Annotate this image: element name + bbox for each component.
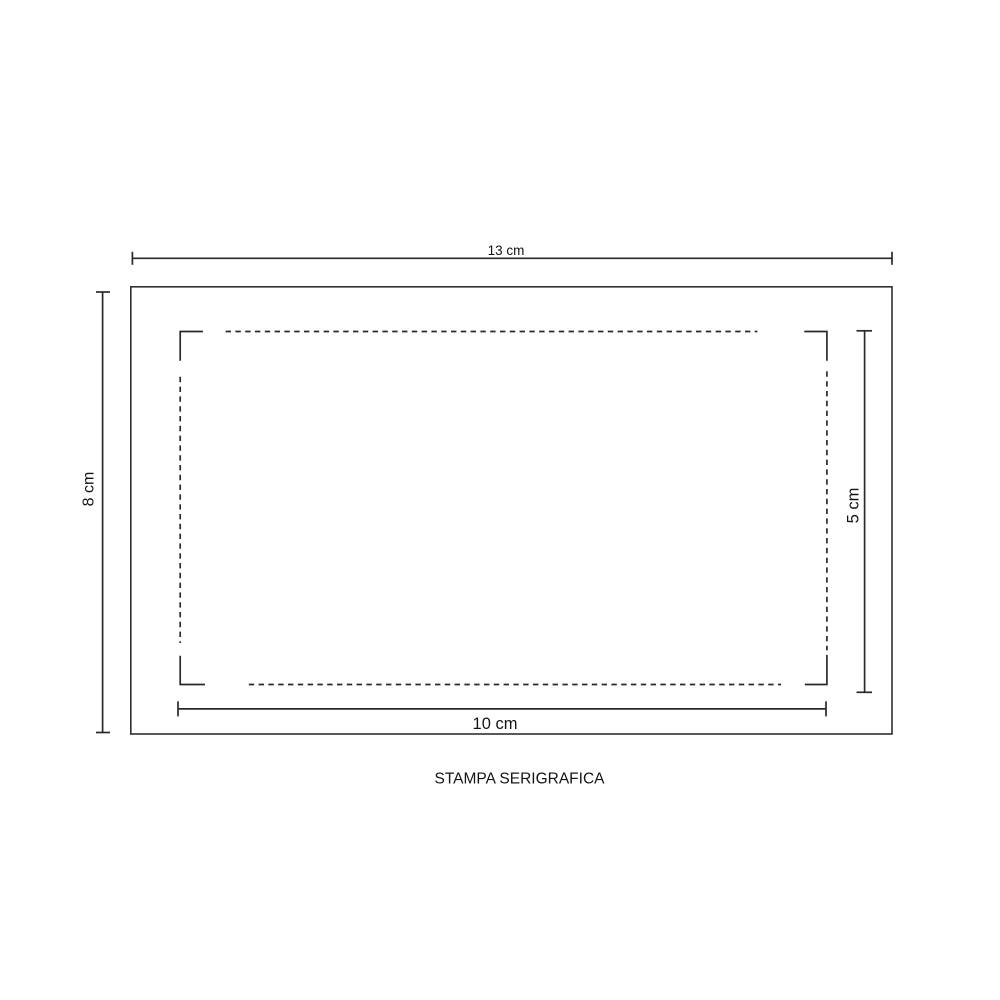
svg-text:13 cm: 13 cm xyxy=(488,243,525,258)
svg-text:5 cm: 5 cm xyxy=(845,488,863,524)
svg-text:8 cm: 8 cm xyxy=(81,472,98,507)
svg-text:STAMPA SERIGRAFICA: STAMPA SERIGRAFICA xyxy=(435,771,606,788)
svg-text:10 cm: 10 cm xyxy=(473,715,518,733)
